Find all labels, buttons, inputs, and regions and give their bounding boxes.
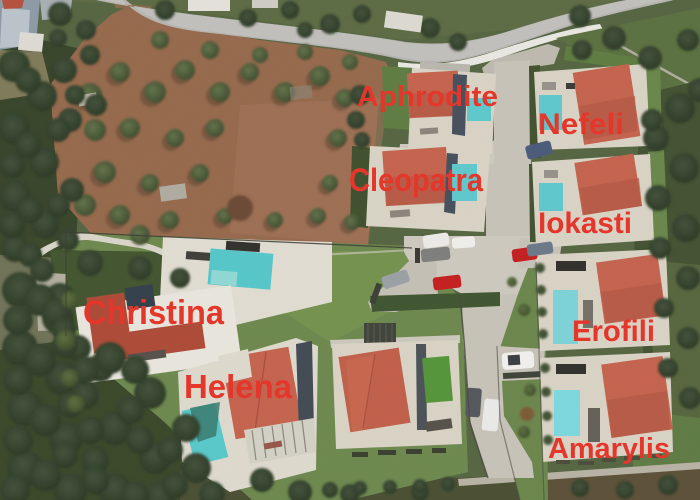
svg-text:Cleopatra: Cleopatra xyxy=(349,162,483,198)
svg-text:Helena: Helena xyxy=(184,368,293,405)
svg-text:Christina: Christina xyxy=(83,294,225,332)
svg-text:Aphrodite: Aphrodite xyxy=(357,81,498,113)
svg-text:Erofili: Erofili xyxy=(572,315,655,348)
svg-text:Nefeli: Nefeli xyxy=(538,108,624,141)
svg-text:Iokasti: Iokasti xyxy=(538,207,632,240)
svg-text:Amarylis: Amarylis xyxy=(548,433,670,465)
